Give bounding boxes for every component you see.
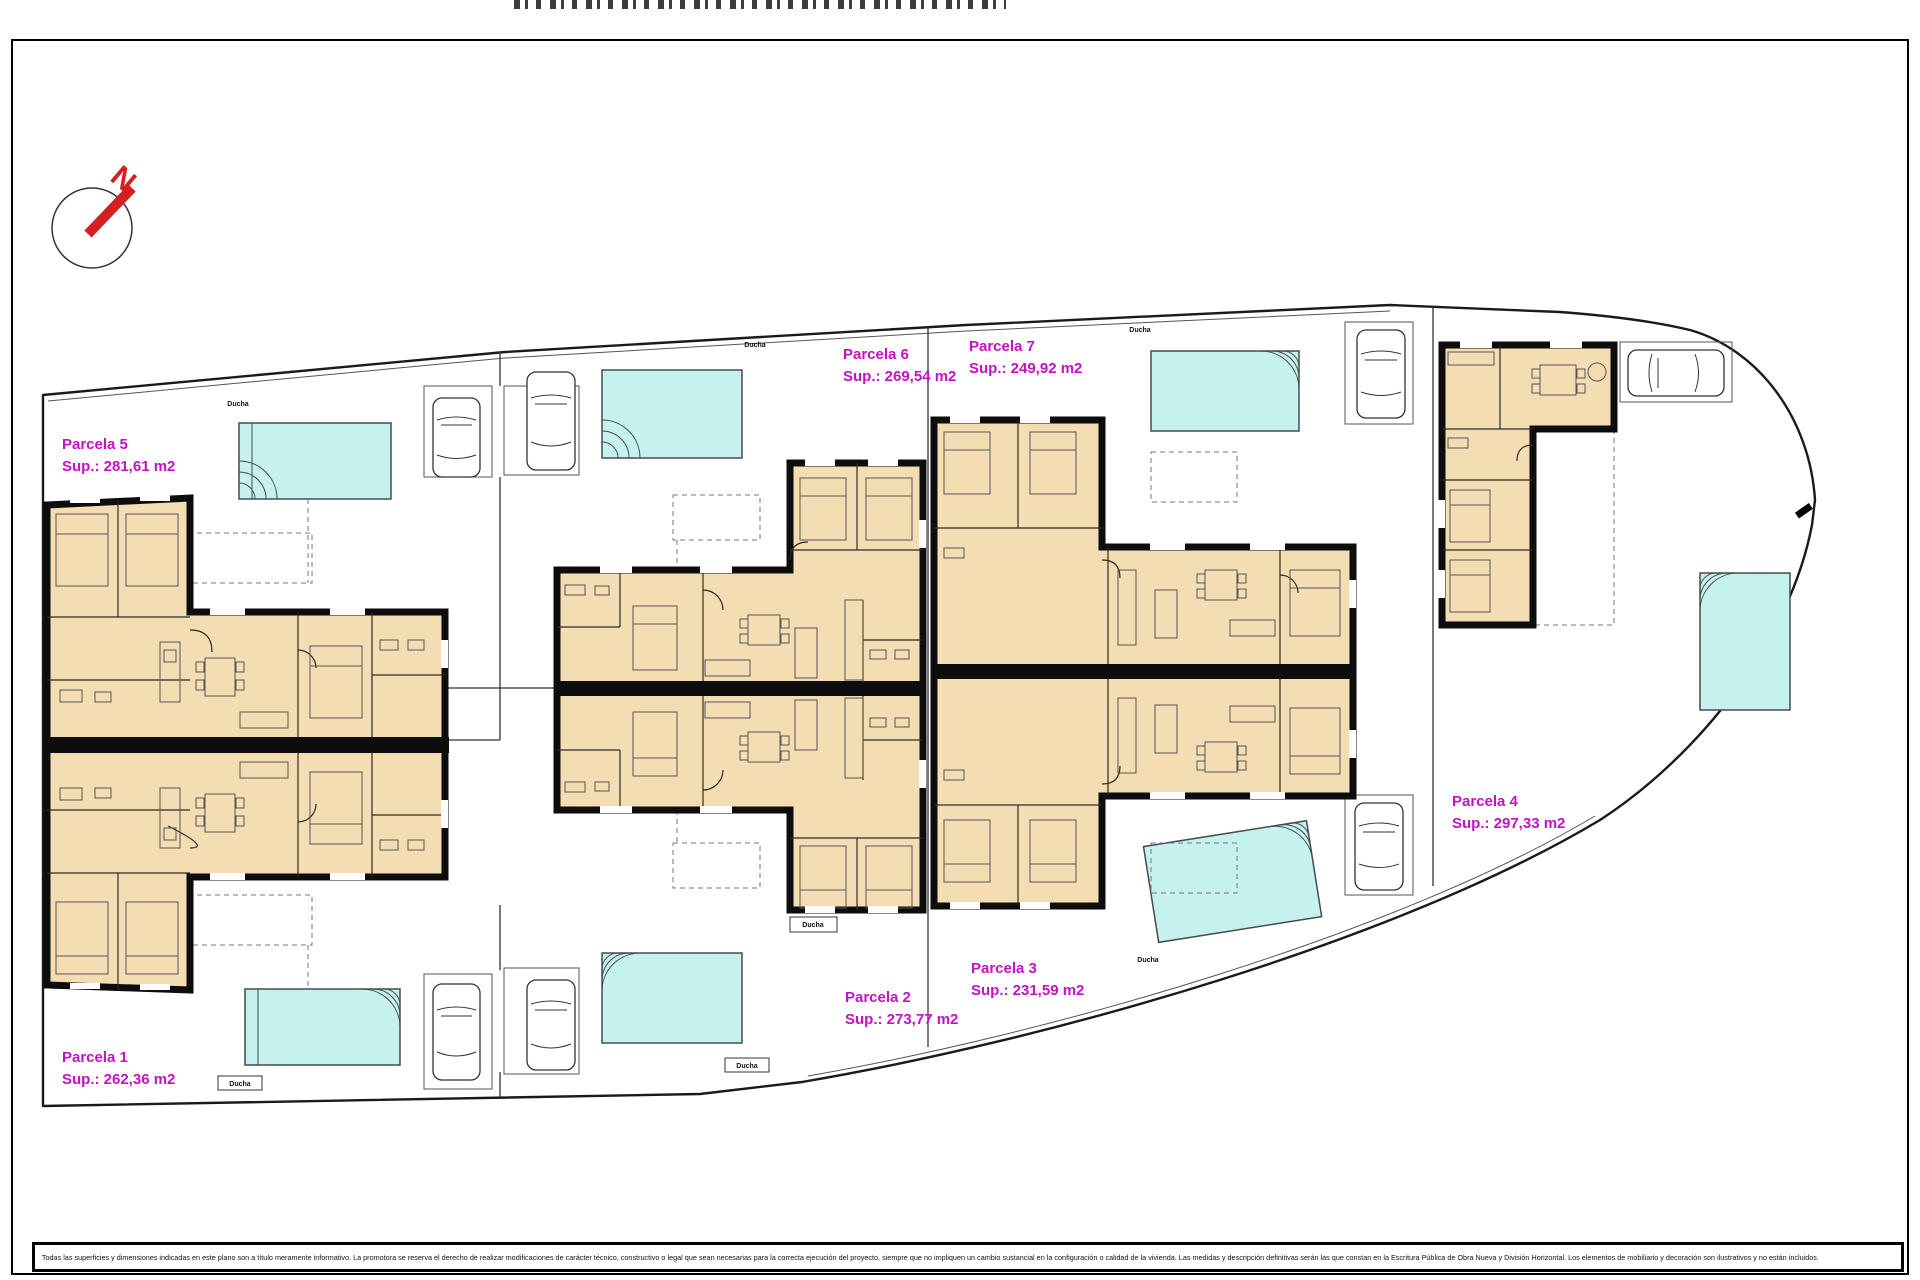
parcel-1-area: Sup.: 262,36 m2 (62, 1071, 175, 1088)
pool-parcela-4 (1700, 573, 1790, 710)
parcel-6-area: Sup.: 269,54 m2 (843, 368, 956, 385)
shower-label: Ducha (227, 401, 249, 408)
north-compass: N (52, 160, 142, 268)
site-plan-drawing: N (0, 0, 1920, 1280)
shower-label: Ducha (744, 342, 766, 349)
parcel-label-4: Parcela 4 Sup.: 297,33 m2 (1452, 793, 1565, 832)
parcel-3-area: Sup.: 231,59 m2 (971, 982, 1084, 999)
car-parcela-1 (433, 984, 480, 1080)
pool-parcela-7 (1151, 351, 1299, 431)
car-parcela-2 (527, 980, 575, 1070)
shower-label: Ducha (1137, 957, 1159, 964)
parcel-7-name: Parcela 7 (969, 338, 1035, 355)
car-parcela-5 (433, 398, 480, 477)
parcel-2-name: Parcela 2 (845, 989, 911, 1006)
pool-parcela-2 (602, 953, 742, 1043)
car-parcela-7 (1357, 330, 1405, 418)
shower-label: Ducha (736, 1063, 758, 1070)
party-wall (557, 681, 923, 696)
parcel-3-name: Parcela 3 (971, 960, 1037, 977)
car-parcela-4 (1628, 350, 1724, 396)
site-plan-page: N (0, 0, 1920, 1280)
pool-parcela-3 (1144, 821, 1322, 943)
parcel-2-area: Sup.: 273,77 m2 (845, 1011, 958, 1028)
parcel-label-5: Parcela 5 Sup.: 281,61 m2 (62, 436, 175, 475)
pool-parcela-5 (239, 423, 391, 499)
car-parcela-6 (527, 372, 575, 470)
car-parcela-3 (1355, 803, 1403, 890)
disclaimer-text: Todas las superficies y dimensiones indi… (35, 1253, 1819, 1262)
gate-mark (1795, 503, 1813, 518)
building-parcela-4 (1438, 341, 1614, 625)
shower-label: Ducha (802, 922, 824, 929)
pool-parcela-6 (602, 370, 742, 458)
parcel-label-1: Parcela 1 Sup.: 262,36 m2 (62, 1049, 175, 1088)
shower-label: Ducha (1129, 327, 1151, 334)
parcel-label-6: Parcela 6 Sup.: 269,54 m2 (843, 346, 956, 385)
parcel-label-7: Parcela 7 Sup.: 249,92 m2 (969, 338, 1082, 377)
party-wall (934, 664, 1353, 679)
parcel-6-name: Parcela 6 (843, 346, 909, 363)
building-parcelas-5-1 (43, 495, 449, 990)
shower-label: Ducha (229, 1081, 251, 1088)
parcel-1-name: Parcela 1 (62, 1049, 128, 1066)
building-parcelas-6-2 (557, 459, 926, 932)
parcel-5-name: Parcela 5 (62, 436, 128, 453)
parcel-label-2: Parcela 2 Sup.: 273,77 m2 (845, 989, 958, 1028)
parcel-4-name: Parcela 4 (1452, 793, 1519, 810)
pool-parcela-1 (245, 989, 400, 1065)
parcel-5-area: Sup.: 281,61 m2 (62, 458, 175, 475)
parcel-4-area: Sup.: 297,33 m2 (1452, 815, 1565, 832)
party-wall (43, 737, 449, 753)
compass-needle (88, 188, 132, 234)
parcel-label-3: Parcela 3 Sup.: 231,59 m2 (971, 960, 1084, 999)
parcel-7-area: Sup.: 249,92 m2 (969, 360, 1082, 377)
disclaimer-box: Todas las superficies y dimensiones indi… (32, 1242, 1904, 1272)
